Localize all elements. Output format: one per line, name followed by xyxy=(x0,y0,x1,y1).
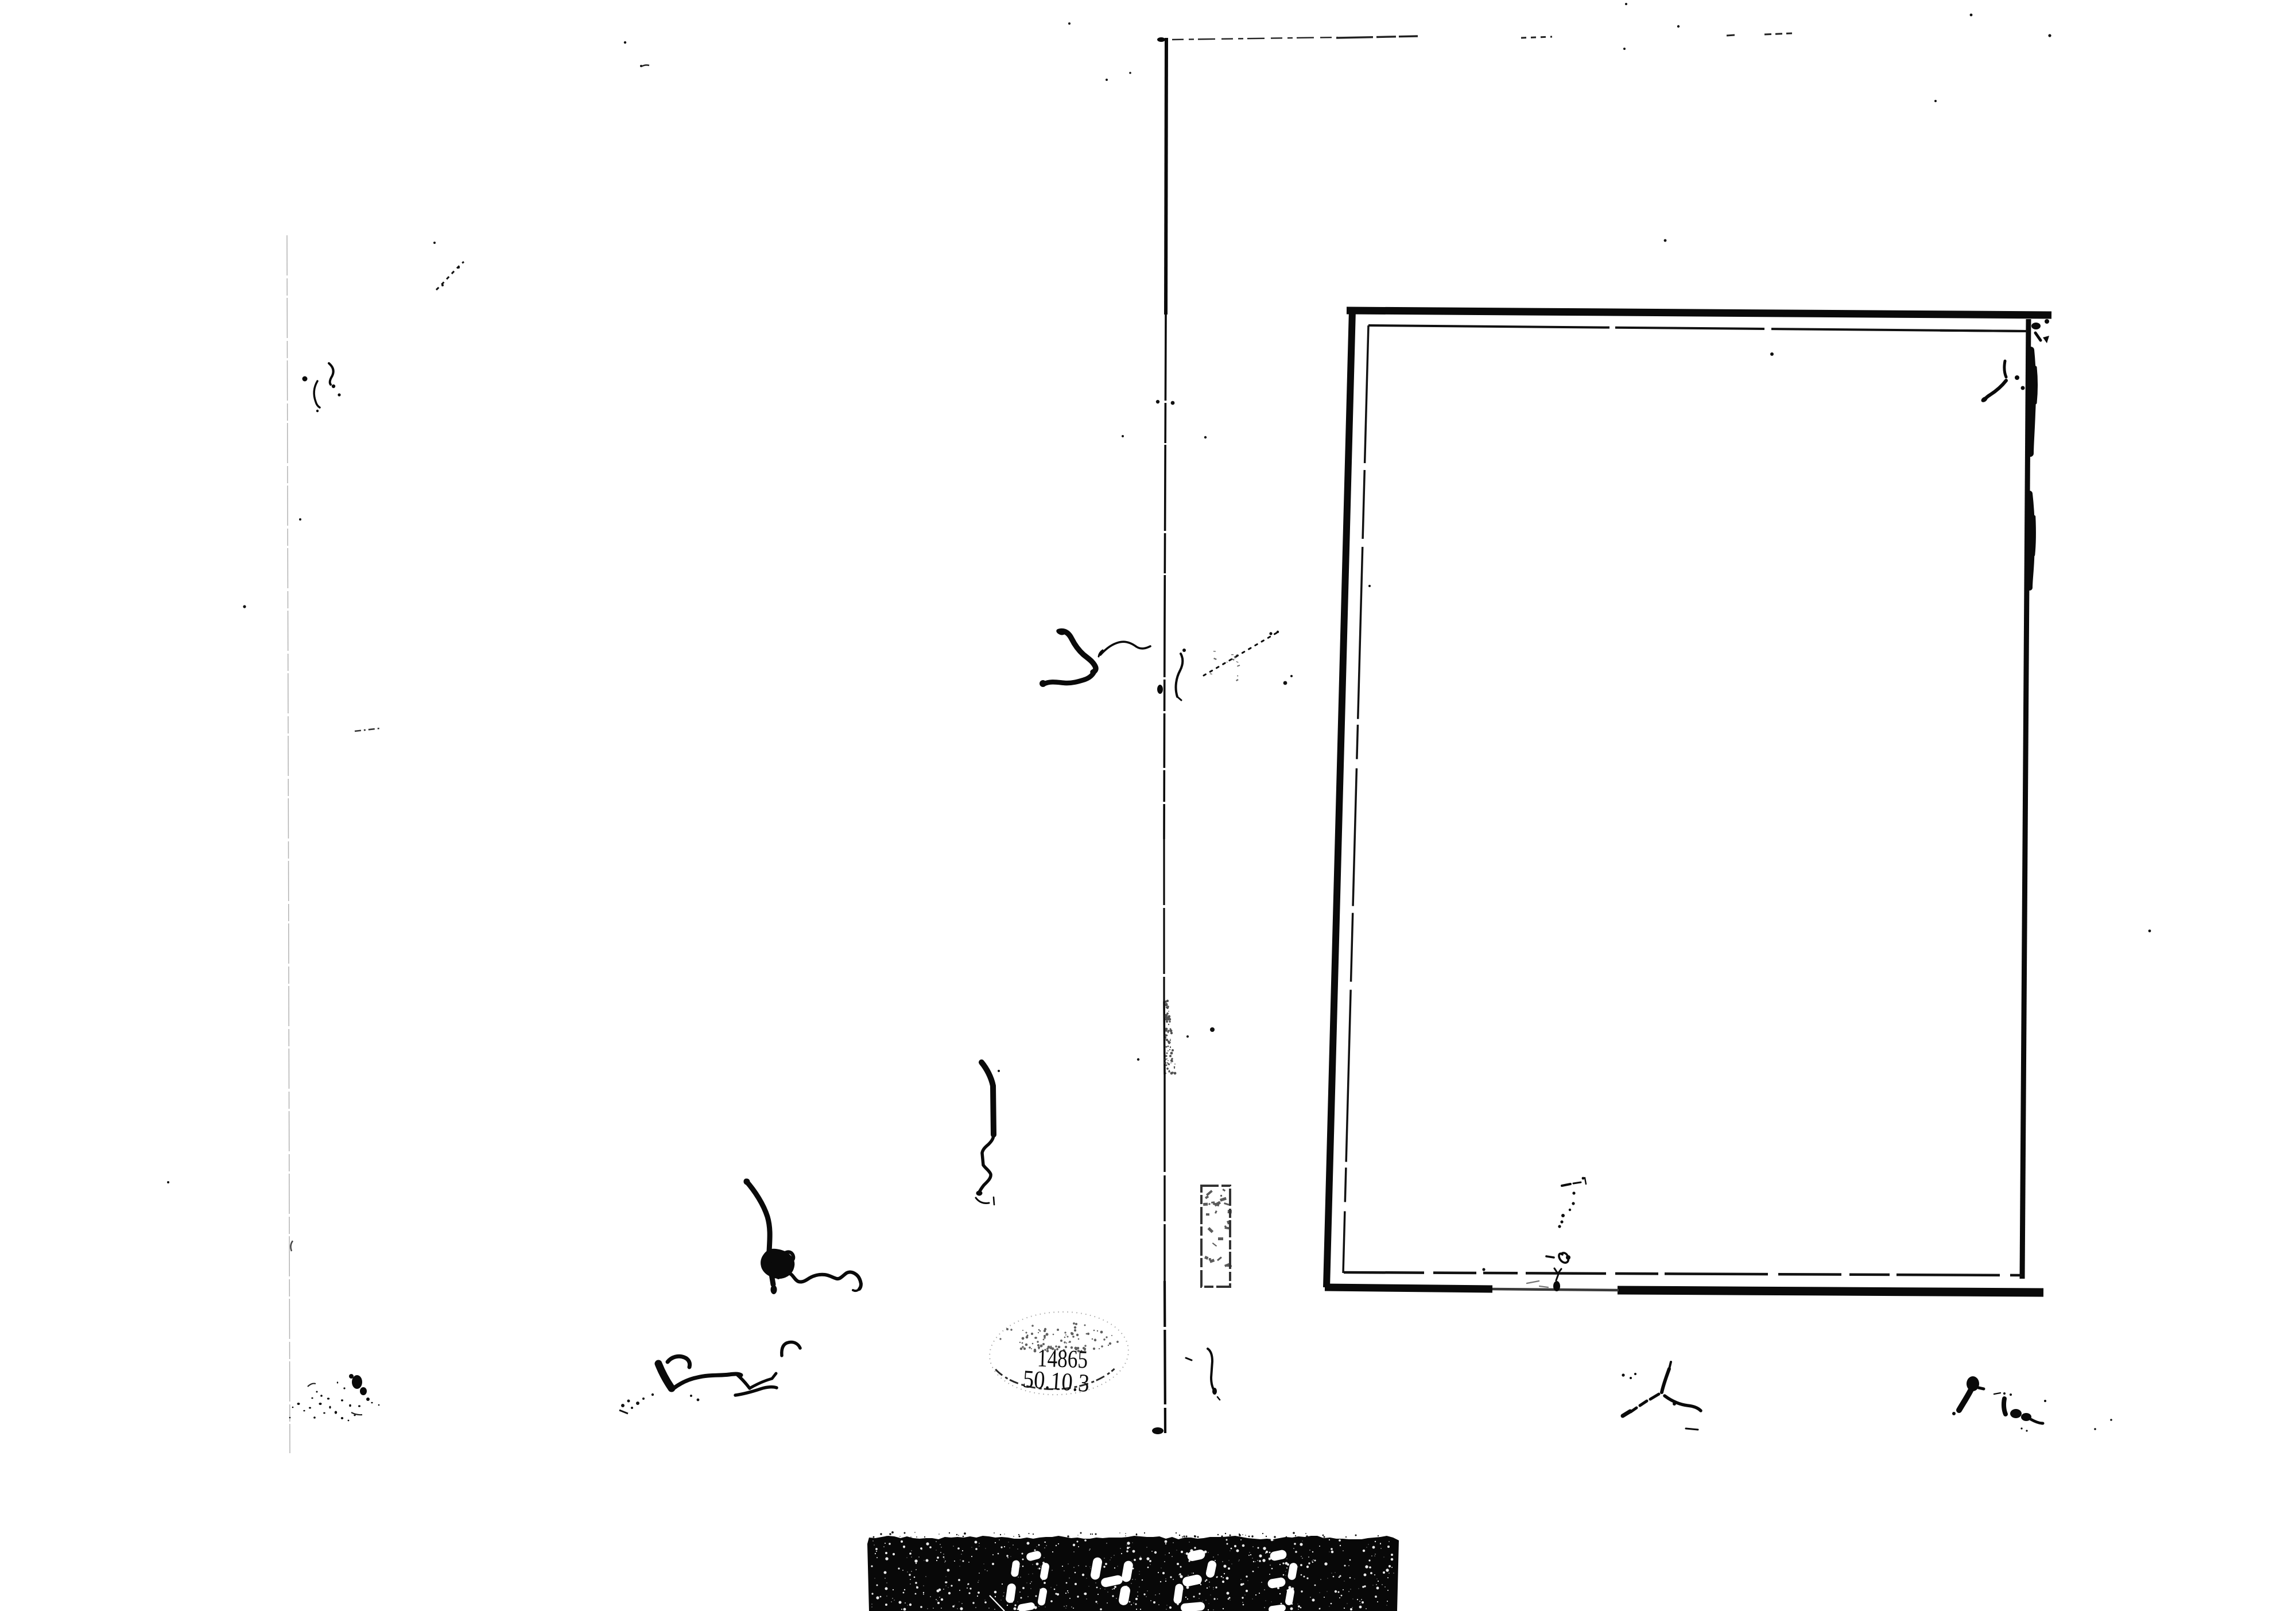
svg-text:50.10.3: 50.10.3 xyxy=(1022,1365,1090,1398)
